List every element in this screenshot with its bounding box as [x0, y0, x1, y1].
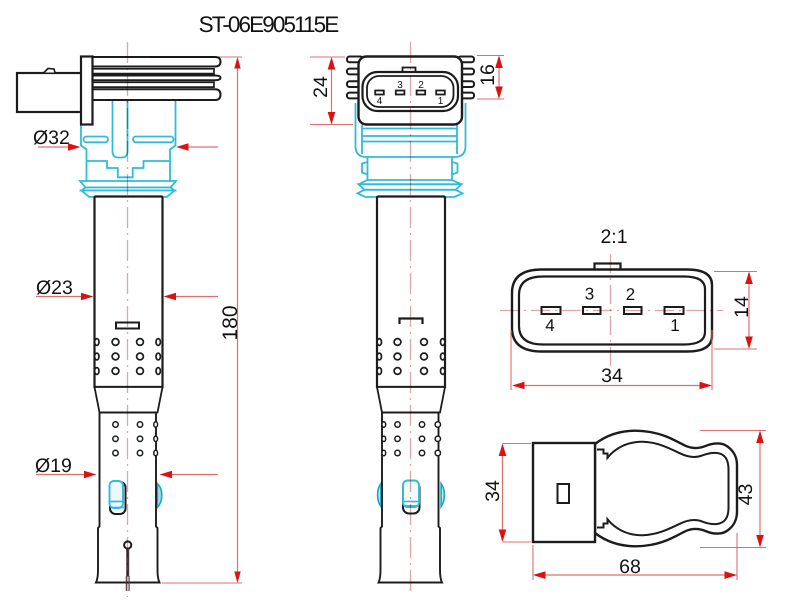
svg-text:Ø32: Ø32: [33, 127, 70, 149]
svg-text:24: 24: [310, 76, 332, 98]
svg-text:14: 14: [731, 296, 753, 318]
svg-text:34: 34: [482, 480, 504, 502]
svg-text:2:1: 2:1: [600, 226, 627, 248]
svg-text:3: 3: [397, 80, 403, 91]
svg-text:180: 180: [219, 305, 242, 340]
svg-text:68: 68: [619, 556, 641, 578]
svg-text:1: 1: [670, 316, 679, 335]
svg-text:Ø23: Ø23: [36, 277, 73, 299]
svg-text:43: 43: [735, 484, 757, 506]
svg-text:2: 2: [626, 285, 635, 304]
svg-text:34: 34: [601, 365, 623, 387]
svg-text:ST-06E905115E: ST-06E905115E: [199, 12, 340, 37]
svg-text:Ø19: Ø19: [35, 455, 72, 477]
svg-text:4: 4: [545, 316, 554, 335]
svg-text:1: 1: [438, 96, 444, 107]
svg-text:4: 4: [377, 96, 383, 107]
svg-text:2: 2: [418, 80, 424, 91]
svg-text:3: 3: [585, 285, 594, 304]
svg-text:16: 16: [477, 64, 499, 86]
